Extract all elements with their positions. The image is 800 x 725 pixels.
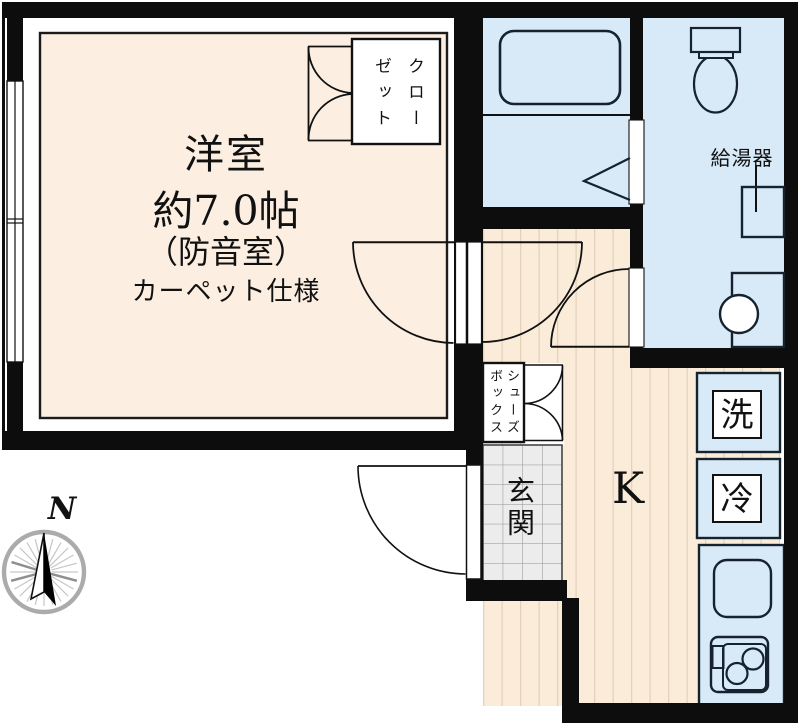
entrance-door <box>358 466 466 574</box>
main-room-label: 洋室 <box>90 122 362 180</box>
water-heater-label: 給湯器 <box>702 142 782 171</box>
window <box>7 81 23 362</box>
main-room-flooring: カーペット仕様 <box>90 271 362 308</box>
main-room-soundproof: （防音室） <box>90 227 362 273</box>
bathroom-floor <box>483 18 630 207</box>
shoe-box-label: シューズ ボックス <box>486 368 520 438</box>
kitchen-label: K <box>604 464 652 514</box>
washbasin-bowl <box>720 295 758 333</box>
toilet-bowl <box>694 56 737 113</box>
washer-label: 洗 <box>712 390 762 439</box>
closet-label: クロー ゼット <box>354 50 430 142</box>
compass-icon <box>4 532 84 612</box>
toilet-tank <box>691 28 740 52</box>
entrance-label: 玄関 <box>503 472 539 544</box>
refrigerator-label: 冷 <box>712 474 762 523</box>
floor-plan: 洋室 約7.0帖 （防音室） カーペット仕様 クロー ゼット シューズ ボックス… <box>0 0 800 725</box>
compass-north-label: N <box>42 491 82 527</box>
